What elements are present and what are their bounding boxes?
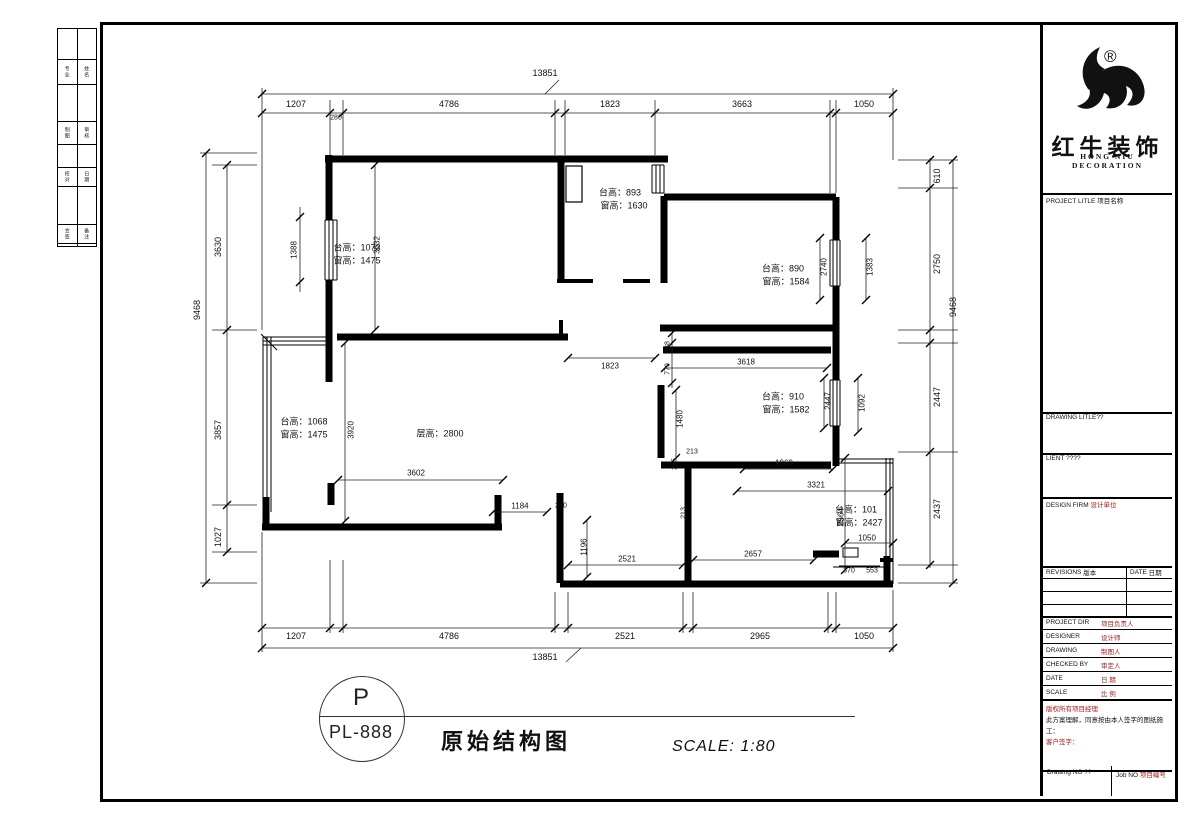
revisions-header: REVISIONS 版本 DATE 日期 — [1043, 566, 1172, 579]
copyright-line: 版权所有项目经理 — [1043, 704, 1172, 715]
rev-date-cn: 日期 — [1149, 567, 1162, 577]
dim-label: 3857 — [213, 420, 223, 440]
copyright-section: 版权所有项目经理 此方案理解，同意按由本人签字的图纸施工： 客户签字： — [1043, 700, 1172, 772]
drawing-scale: SCALE: 1:80 — [672, 738, 776, 756]
number-cells: Drawing NO ?? Job NO 项目编号 — [1043, 766, 1172, 796]
staff-row: PROJECT DIR项目负责人 — [1043, 616, 1172, 630]
dim-label: 1050 — [854, 99, 874, 109]
dim-label: 1050 — [858, 534, 876, 543]
revisions-table: REVISIONS 版本 DATE 日期 — [1043, 566, 1172, 618]
design-firm-section: DESIGN FIRM 设计单位 — [1043, 497, 1172, 568]
room-label: 窗高：1475 — [280, 428, 327, 441]
dim-label: 1184 — [511, 502, 528, 511]
staff-rows: PROJECT DIR项目负责人 DESIGNER设计师 DRAWING制图人 … — [1043, 616, 1172, 701]
dim-label: 1480 — [676, 410, 685, 428]
room-label: 台高：910 — [762, 390, 804, 403]
drawing-title: 原始结构图 — [441, 724, 571, 756]
room-label: 台高：1073 — [333, 241, 380, 254]
dim-label: 280 — [555, 503, 567, 510]
dim-label: 1823 — [600, 99, 620, 109]
dim-label: 1383 — [866, 258, 875, 276]
bubble-number: PL-888 — [317, 722, 405, 743]
client-section: LIENT ???? — [1043, 453, 1172, 499]
dim-label: 3663 — [732, 99, 752, 109]
plan-labels-layer: 1385112072804786182336631050120747862521… — [0, 0, 1200, 825]
dim-label: 13851 — [532, 68, 557, 78]
revisions-row — [1043, 592, 1172, 605]
dim-label: 2750 — [932, 254, 942, 274]
dim-label: 1050 — [854, 631, 874, 641]
dim-label: 553 — [866, 568, 878, 575]
dim-label: 3630 — [213, 237, 223, 257]
dim-label: 280 — [330, 115, 342, 122]
dim-label: 3321 — [807, 481, 825, 490]
room-label: 窗高：1630 — [600, 199, 647, 212]
dim-label: 3920 — [347, 421, 356, 439]
revisions-row — [1043, 579, 1172, 592]
dim-label: 2521 — [618, 555, 636, 564]
project-title-en: PROJECT LITLE — [1046, 198, 1095, 205]
project-title-section: PROJECT LITLE 项目名称 — [1043, 193, 1172, 414]
dim-label: 1207 — [286, 99, 306, 109]
dim-label: 4786 — [439, 99, 459, 109]
dim-label: 4786 — [439, 631, 459, 641]
job-no-cell: Job NO 项目编号 — [1112, 766, 1172, 796]
logo-section — [1043, 22, 1172, 195]
staff-row: DRAWING制图人 — [1043, 644, 1172, 658]
design-firm-en: DESIGN FIRM — [1046, 502, 1089, 509]
revisions-cn: 版本 — [1083, 567, 1096, 577]
dim-label: 610 — [932, 168, 942, 183]
dim-label: 13851 — [532, 652, 557, 662]
drawing-title-section: DRAWING LITLE?? — [1043, 412, 1172, 455]
dim-label: 779 — [665, 363, 672, 375]
drawing-sheet: 专业 姓名 制图 审核 校对 日期 会签 备注 1385112072804786… — [0, 0, 1200, 825]
revisions-en: REVISIONS — [1046, 569, 1081, 576]
dim-label: 2740 — [820, 258, 829, 276]
dim-label: 1092 — [858, 394, 867, 412]
drawing-title-label: DRAWING LITLE?? — [1043, 412, 1172, 421]
dim-label: 3618 — [737, 358, 755, 367]
dim-label: 2657 — [744, 550, 762, 559]
staff-row: CHECKED BY审定人 — [1043, 658, 1172, 672]
bubble-letter: P — [319, 684, 403, 712]
room-label: 窗高：2427 — [835, 516, 882, 529]
rev-date-en: DATE — [1130, 569, 1147, 576]
dim-label: 213 — [681, 507, 688, 519]
dim-label: 1027 — [213, 527, 223, 547]
dim-label: 1823 — [601, 362, 619, 371]
dim-label: 2447 — [932, 387, 942, 407]
room-label: 台高：890 — [762, 262, 804, 275]
room-label: 台高：893 — [599, 186, 641, 199]
dim-label: 213 — [686, 449, 698, 456]
dim-label: 2437 — [932, 499, 942, 519]
client-label: LIENT ???? — [1043, 453, 1172, 462]
room-label: 窗高：1582 — [762, 403, 809, 416]
project-title-cn: 项目名称 — [1097, 198, 1123, 205]
dim-label: 235 — [672, 458, 679, 470]
design-firm-cn: 设计单位 — [1090, 502, 1116, 509]
agreement-line: 此方案理解，同意按由本人签字的图纸施工： — [1043, 715, 1172, 737]
room-label: 台高：101 — [835, 503, 877, 516]
staff-row: SCALE比 例 — [1043, 686, 1172, 701]
staff-row: DATE日 期 — [1043, 672, 1172, 686]
dim-label: 2521 — [615, 631, 635, 641]
dim-label: 2447 — [824, 392, 833, 410]
dim-label: 188 — [665, 341, 672, 353]
staff-row: DESIGNER设计师 — [1043, 630, 1172, 644]
dim-label: 9468 — [192, 300, 202, 320]
dim-label: 9468 — [948, 297, 958, 317]
drawing-no-cell: Drawing NO ?? — [1043, 766, 1112, 796]
dim-label: 1196 — [580, 538, 589, 555]
client-sign-line: 客户签字： — [1043, 737, 1172, 748]
dim-label: 3602 — [407, 469, 425, 478]
dim-label: 1207 — [286, 631, 306, 641]
dim-label: 2965 — [750, 631, 770, 641]
dim-label: 370 — [843, 568, 855, 575]
room-label: 窗高：1475 — [333, 254, 380, 267]
room-label: 台高：1068 — [280, 415, 327, 428]
room-label: 层高：2800 — [416, 427, 463, 440]
dim-label: 1388 — [290, 241, 299, 259]
dim-label: 1969 — [775, 459, 793, 468]
room-label: 窗高：1584 — [762, 275, 809, 288]
